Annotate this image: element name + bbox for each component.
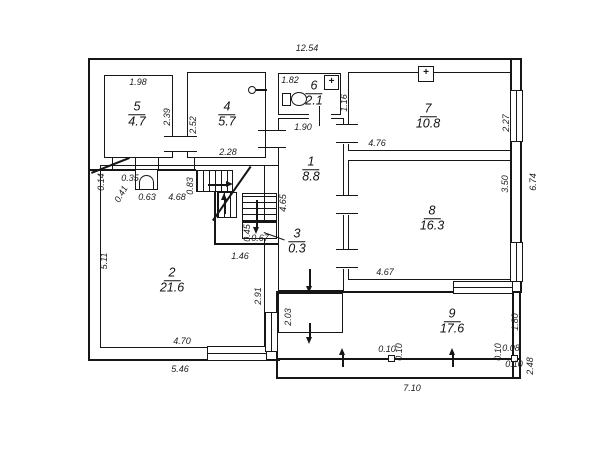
stairwell-wall-bottom [214, 243, 278, 245]
outer-wall-left [88, 58, 90, 361]
dimension-label: 2.27 [501, 114, 511, 132]
dimension-label: 1.98 [129, 77, 147, 87]
door-knob-line [256, 89, 267, 91]
stairs-lower-flight [242, 193, 277, 222]
room-label-4: 45.7 [218, 97, 235, 129]
dimension-label: 1.80 [510, 313, 520, 331]
dimension-label: 3.50 [500, 175, 510, 193]
dimension-label: 2.28 [219, 147, 237, 157]
dimension-label: 0.14 [96, 173, 106, 191]
vestibule-arrow [309, 323, 311, 338]
dimension-label: 2.03 [283, 308, 293, 326]
dimension-label: 4.70 [173, 336, 191, 346]
entrance-arrowhead [306, 286, 312, 293]
room-label-3: 30.3 [288, 224, 305, 256]
dimension-label: 7.10 [403, 383, 421, 393]
window [207, 346, 267, 361]
dimension-label: 0.10 [394, 343, 404, 361]
stair-down-arrow [256, 200, 258, 228]
flue-icon: + [418, 66, 434, 82]
window [510, 242, 523, 282]
dimension-label: 0.83 [185, 177, 195, 195]
dimension-label: 2.91 [253, 287, 263, 305]
dimension-label: 0.35 [121, 173, 139, 183]
door-jamb-tick [336, 124, 358, 125]
niche-divider [158, 158, 159, 170]
door-jamb-tick [336, 195, 358, 196]
floor-plan: + + 18.8221.630.345.754.762.1710.8816.39… [0, 0, 607, 451]
niche-divider [194, 158, 195, 170]
stove-arch-icon [139, 175, 154, 189]
stair-turn-arrowhead [221, 193, 227, 200]
dimension-label: 5.11 [99, 253, 109, 270]
dimension-label: 2.48 [525, 357, 535, 375]
door-jamb-tick [164, 151, 197, 152]
dimension-label: 12.54 [296, 43, 319, 53]
door-gap [172, 137, 189, 152]
room-label-2: 221.6 [160, 263, 184, 295]
dimension-label: 4.67 [376, 267, 394, 277]
dimension-label: 6.74 [528, 173, 538, 191]
door-jamb-tick [336, 213, 358, 214]
dimension-label: 2.39 [162, 108, 172, 126]
outer-wall-top [88, 58, 522, 60]
stair-turn-arrow [224, 198, 226, 214]
room-label-1: 18.8 [302, 152, 319, 184]
dimension-label: 4.65 [278, 194, 288, 212]
stair-area-top-wall [187, 165, 278, 166]
door-jamb-tick [258, 130, 286, 131]
dimension-label: 1.46 [231, 251, 249, 261]
door-knob-icon [248, 86, 256, 94]
door-jamb-tick [319, 106, 320, 126]
stairs-turn-flight [217, 192, 237, 218]
dimension-label: 2.52 [188, 116, 198, 134]
dimension-label: 4.68 [168, 192, 186, 202]
porch-step-arrowhead [449, 348, 455, 355]
dimension-label: 1.82 [281, 75, 299, 85]
dimension-label: 1.16 [339, 94, 349, 112]
room-label-9: 917.6 [440, 304, 464, 336]
flue-icon: + [324, 75, 339, 90]
dimension-label: 0.08 [502, 343, 520, 353]
dimension-label: 0.10 [505, 359, 523, 369]
toilet-tank-icon [282, 93, 291, 106]
vestibule-arrowhead [306, 337, 312, 344]
room-label-5: 54.7 [128, 97, 145, 129]
dimension-label: 1.90 [294, 122, 312, 132]
window [265, 312, 278, 352]
stair-up-arrowhead [226, 181, 233, 187]
room-label-7: 710.8 [416, 99, 440, 131]
dimension-label: 0.67 [251, 233, 269, 243]
porch-step-arrowhead [339, 348, 345, 355]
dimension-label: 5.46 [171, 364, 189, 374]
door-jamb-tick [164, 136, 197, 137]
window [453, 281, 513, 294]
dimension-label: 4.76 [368, 138, 386, 148]
room-label-6: 62.1 [305, 76, 322, 108]
stair-up-arrow [208, 184, 226, 186]
door-jamb-tick [336, 267, 358, 268]
dimension-label: 0.63 [138, 192, 156, 202]
door-jamb-tick [336, 142, 358, 143]
entrance-arrow [309, 269, 311, 287]
window [510, 90, 523, 142]
door-jamb-tick [336, 249, 358, 250]
room-label-8: 816.3 [420, 201, 444, 233]
door-gap [266, 131, 279, 148]
door-jamb-tick [258, 147, 286, 148]
